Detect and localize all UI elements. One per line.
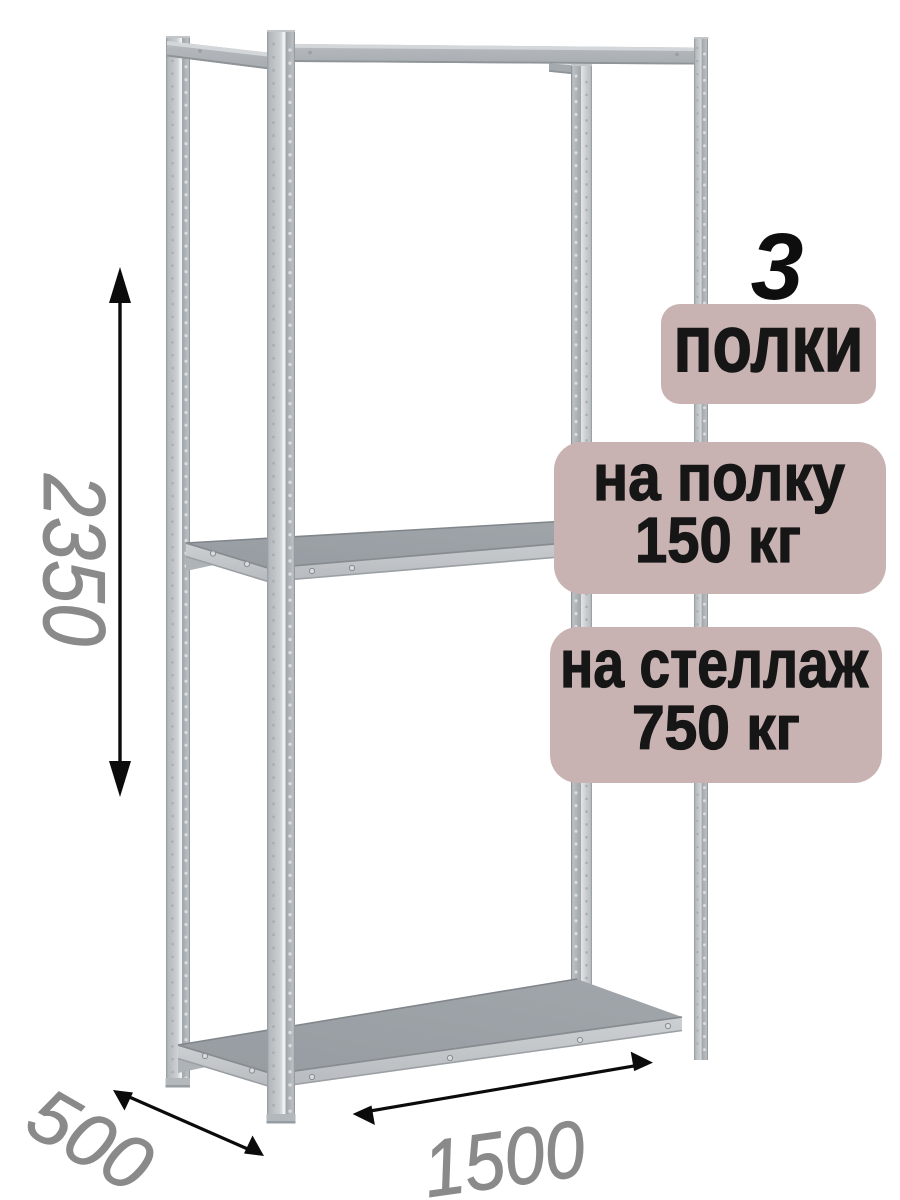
svg-text:150 кг: 150 кг xyxy=(635,504,801,576)
svg-text:750 кг: 750 кг xyxy=(632,694,800,763)
svg-text:2350: 2350 xyxy=(25,473,124,646)
svg-text:на стеллаж: на стеллаж xyxy=(560,626,869,702)
svg-text:полки: полки xyxy=(674,299,864,389)
svg-text:на полку: на полку xyxy=(593,440,845,514)
